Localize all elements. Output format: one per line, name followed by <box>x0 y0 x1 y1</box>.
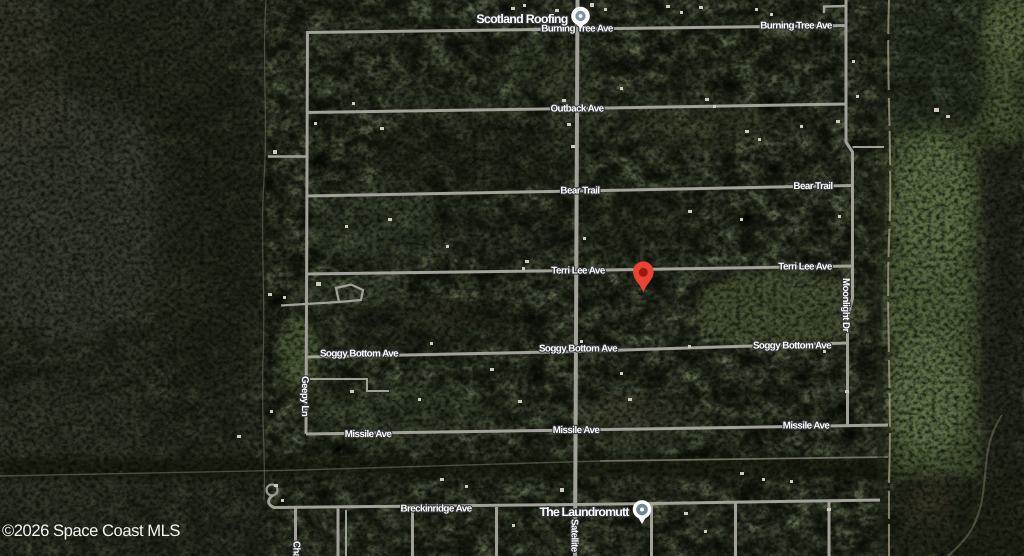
svg-text:Missile Ave: Missile Ave <box>783 421 831 432</box>
svg-text:Geepy Ln: Geepy Ln <box>299 376 310 417</box>
svg-text:Soggy Bottom Ave: Soggy Bottom Ave <box>539 344 618 355</box>
svg-text:Burning Tree Ave: Burning Tree Ave <box>760 21 833 32</box>
svg-text:©2026 Space Coast MLS: ©2026 Space Coast MLS <box>2 521 180 540</box>
svg-text:Soggy Bottom Ave: Soggy Bottom Ave <box>753 341 832 352</box>
svg-text:Missile Ave: Missile Ave <box>553 425 601 436</box>
svg-text:Breckinridge Ave: Breckinridge Ave <box>400 504 472 515</box>
svg-text:Terri Lee Ave: Terri Lee Ave <box>551 266 606 277</box>
svg-text:Outback Ave: Outback Ave <box>550 104 604 115</box>
svg-text:Cha: Cha <box>291 541 302 556</box>
svg-text:Bear Trail: Bear Trail <box>793 181 833 192</box>
svg-text:Moonlight Dr: Moonlight Dr <box>840 278 851 333</box>
svg-text:Terri Lee Ave: Terri Lee Ave <box>778 262 833 273</box>
svg-text:Scotland Roofing: Scotland Roofing <box>476 12 567 26</box>
svg-text:Soggy Bottom Ave: Soggy Bottom Ave <box>320 349 399 360</box>
svg-text:The Laundromutt: The Laundromutt <box>539 505 629 519</box>
svg-text:Satellite: Satellite <box>569 519 580 553</box>
svg-text:Missile Ave: Missile Ave <box>345 429 393 440</box>
svg-text:Bear Trail: Bear Trail <box>560 186 600 197</box>
